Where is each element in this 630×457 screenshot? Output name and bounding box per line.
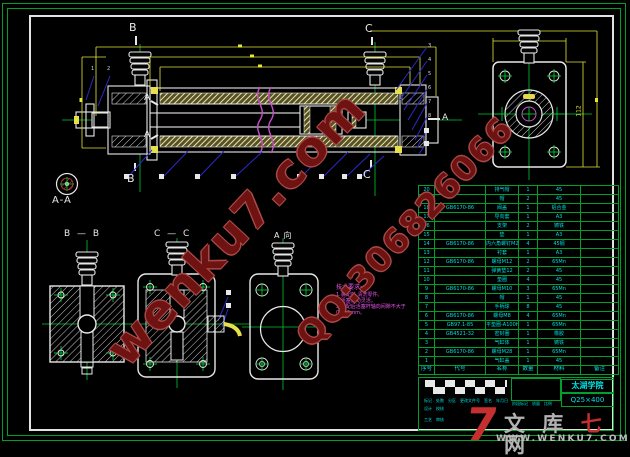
title-block-label: 处数 — [436, 399, 444, 403]
section-arrow-a-lower: A — [144, 131, 150, 140]
bom-cell: 数量 — [519, 366, 538, 375]
bom-cell: 2 — [519, 222, 538, 231]
section-marker-b-top: B — [129, 22, 137, 33]
bom-cell — [581, 213, 619, 222]
section-marker-b-bottom: B — [127, 173, 135, 184]
bom-cell: 内六角螺钉M2×70 — [486, 240, 519, 249]
bom-cell: 65Mn — [538, 348, 581, 357]
bom-cell — [435, 195, 486, 204]
view-bb — [50, 252, 124, 374]
drawing-title-box — [511, 378, 561, 401]
view-cc — [138, 242, 240, 377]
bom-cell — [435, 213, 486, 222]
bom-cell — [435, 231, 486, 240]
bom-cell — [581, 357, 619, 366]
bom-cell: GB6170-86 — [435, 285, 486, 294]
bom-cell: GB4521-32 — [435, 330, 486, 339]
bom-cell: 2 — [519, 195, 538, 204]
tech-notes-title: 技术要求: — [336, 285, 428, 291]
bom-cell: 5 — [419, 321, 435, 330]
bom-row: 20排气帽145 — [419, 186, 619, 195]
balloon-number: 5 — [428, 72, 431, 77]
bom-cell — [581, 195, 619, 204]
bom-cell: 平垫圈-A100HV — [486, 321, 519, 330]
bom-cell: GB6170-86 — [435, 258, 486, 267]
bom-cell — [581, 231, 619, 240]
bom-cell: 20 — [419, 186, 435, 195]
bom-cell: 备注 — [581, 366, 619, 375]
title-block-label: 校核 — [436, 407, 444, 411]
bom-cell: 19 — [419, 195, 435, 204]
bom-cell: 弹簧垫12 — [486, 267, 519, 276]
bom-cell — [581, 312, 619, 321]
bom-row: 1气缸盖145 — [419, 357, 619, 366]
bom-cell: 1 — [519, 231, 538, 240]
bom-cell — [581, 204, 619, 213]
title-block-label: 审核 — [436, 418, 444, 422]
view-flange — [493, 30, 566, 167]
balloon-number: 2 — [107, 67, 110, 72]
bom-cell: 衬套 — [486, 249, 519, 258]
school-name: 太湖学院 — [561, 379, 614, 393]
section-marker-c-bottom: C — [363, 169, 371, 180]
bom-cell: 1 — [519, 330, 538, 339]
bom-cell: 45 — [538, 195, 581, 204]
bom-cell: 3 — [419, 339, 435, 348]
bom-cell: A3 — [538, 231, 581, 240]
bom-cell: GB6170-86 — [435, 240, 486, 249]
bom-cell: 手柄球 — [486, 303, 519, 312]
bom-cell — [581, 186, 619, 195]
bom-cell: 45 — [538, 357, 581, 366]
tech-notes-lines: 1.装配前,清洗零件。2.活塞运动灵活。3.装配后活塞杆轴向间隙不大于0.025… — [336, 292, 428, 316]
bom-row: 3气缸体1铸铁 — [419, 339, 619, 348]
balloon-number: 1 — [91, 67, 94, 72]
bom-row: 7手柄球845 — [419, 303, 619, 312]
bom-cell — [581, 258, 619, 267]
bom-cell: 14 — [419, 240, 435, 249]
bom-cell — [581, 222, 619, 231]
bom-cell: 4 — [519, 312, 538, 321]
bom-cell — [581, 267, 619, 276]
bom-cell: 4 — [519, 240, 538, 249]
balloon-number: 3 — [428, 44, 431, 49]
bom-cell: GB6170-86 — [435, 312, 486, 321]
flange-height-dim: 112 — [577, 105, 583, 116]
section-marker-c-top: C — [365, 23, 373, 34]
bom-cell: 1 — [519, 348, 538, 357]
bom-cell — [435, 303, 486, 312]
bom-cell: 铸铁 — [538, 222, 581, 231]
logo-seven: 7 — [463, 402, 501, 447]
bom-cell: 气缸盖 — [486, 357, 519, 366]
bom-cell: 1 — [519, 321, 538, 330]
logo-url: WWW.WENKU7.COM — [496, 435, 630, 444]
bom-cell: 45 — [538, 294, 581, 303]
bom-cell: 6 — [419, 312, 435, 321]
bom-row: 18GB6170-86阀盖1铝合金 — [419, 204, 619, 213]
title-block-label: 分区 — [448, 399, 456, 403]
bom-cell: 1 — [519, 249, 538, 258]
bom-cell: A3 — [538, 213, 581, 222]
bom-row: 13衬套1A3 — [419, 249, 619, 258]
bom-cell: 铸铁 — [538, 339, 581, 348]
view-a-direction — [250, 243, 318, 379]
title-block-label: 标记 — [424, 399, 432, 403]
bom-cell — [435, 267, 486, 276]
view-cc-label: C — C — [154, 230, 191, 239]
title-block-label: 设计 — [424, 407, 432, 411]
bom-cell: 8 — [519, 303, 538, 312]
bom-cell: 橡胶 — [538, 330, 581, 339]
bom-cell: GB97.1-85 — [435, 321, 486, 330]
bom-row: 14GB6170-86内六角螺钉M2×70445钢 — [419, 240, 619, 249]
detail-aa-label: A-A — [52, 196, 72, 206]
bom-cell: 铝合金 — [538, 204, 581, 213]
bom-cell — [435, 294, 486, 303]
cad-screenshot: { "watermarks": { "site": "wenku7.com", … — [0, 0, 630, 448]
bom-cell: 16 — [419, 222, 435, 231]
bom-cell — [581, 294, 619, 303]
bom-cell — [581, 276, 619, 285]
bom-cell: 气缸体 — [486, 339, 519, 348]
bom-cell: 65Mn — [538, 285, 581, 294]
bom-cell: 3 — [519, 285, 538, 294]
bom-cell: 导向套 — [486, 213, 519, 222]
bom-cell — [435, 222, 486, 231]
bom-cell — [581, 285, 619, 294]
bom-row: 5GB97.1-85平垫圈-A100HV165Mn — [419, 321, 619, 330]
balloon-number: 4 — [428, 58, 431, 63]
bom-cell: 1 — [519, 357, 538, 366]
bom-cell: 4 — [519, 276, 538, 285]
bom-table: 20排气帽14519帽24518GB6170-86阀盖1铝合金17导向套1A31… — [418, 185, 619, 375]
bom-cell: 密封圈 — [486, 330, 519, 339]
bom-cell: 1 — [519, 294, 538, 303]
view-a-label: A向 — [274, 232, 295, 240]
bom-cell — [581, 303, 619, 312]
bom-cell: 4 — [419, 330, 435, 339]
bom-cell: 螺母M12 — [486, 258, 519, 267]
bom-cell: 1 — [519, 213, 538, 222]
bom-row: 6GB6170-86螺母M8465Mn — [419, 312, 619, 321]
bom-cell: 65Mn — [538, 321, 581, 330]
bom-cell: 9 — [419, 285, 435, 294]
bom-row: 15垫1A3 — [419, 231, 619, 240]
bom-cell: 垫圈 — [486, 276, 519, 285]
bom-cell: 45 — [538, 186, 581, 195]
bom-cell: 支架 — [486, 222, 519, 231]
bom-cell: 18 — [419, 204, 435, 213]
bom-cell: GB6170-86 — [435, 348, 486, 357]
bom-cell — [435, 276, 486, 285]
balloon-number: 7 — [428, 100, 431, 105]
bom-cell — [581, 249, 619, 258]
scale-bar — [425, 380, 507, 394]
bom-cell: 1 — [419, 357, 435, 366]
bom-cell: 7 — [419, 303, 435, 312]
bom-row: 序号代号名称数量材料备注 — [419, 366, 619, 375]
bom-row: 8帽145 — [419, 294, 619, 303]
bom-row: 4GB4521-32密封圈1橡胶 — [419, 330, 619, 339]
bom-row: 12GB6170-86螺母M12265Mn — [419, 258, 619, 267]
bom-cell: 65Mn — [538, 312, 581, 321]
balloon-squares — [124, 128, 429, 308]
bom-cell: 2 — [519, 267, 538, 276]
wenku7-logo: 7 文 库 七 网 WWW.WENKU7.COM — [460, 400, 628, 448]
bom-cell: 螺母M10 — [486, 285, 519, 294]
bom-cell — [581, 240, 619, 249]
detail-aa — [57, 174, 78, 195]
bom-cell: 阀盖 — [486, 204, 519, 213]
bom-cell: 1 — [519, 204, 538, 213]
bom-row: 17导向套1A3 — [419, 213, 619, 222]
bom-cell: 代号 — [435, 366, 486, 375]
bom-cell: 名称 — [486, 366, 519, 375]
bom-cell: 10 — [419, 276, 435, 285]
tech-notes: 技术要求: 1.装配前,清洗零件。2.活塞运动灵活。3.装配后活塞杆轴向间隙不大… — [336, 285, 428, 316]
bom-cell: 螺母M8 — [486, 312, 519, 321]
bom-cell: 12 — [419, 258, 435, 267]
bom-cell — [435, 186, 486, 195]
bom-cell: 螺母M28 — [486, 348, 519, 357]
bom-cell: 45 — [538, 267, 581, 276]
bom-row: 2GB6170-86螺母M28165Mn — [419, 348, 619, 357]
balloon-number: 8 — [428, 114, 431, 119]
bom-cell: 序号 — [419, 366, 435, 375]
bom-cell: 8 — [419, 294, 435, 303]
balloon-number: 6 — [428, 86, 431, 91]
bom-cell: 2 — [519, 258, 538, 267]
bom-cell — [581, 330, 619, 339]
bom-cell: 17 — [419, 213, 435, 222]
bom-cell: 15 — [419, 231, 435, 240]
bom-cell: 材料 — [538, 366, 581, 375]
view-arrow-a-right: A — [442, 114, 448, 123]
title-block-label: 工艺 — [424, 418, 432, 422]
bom-cell: 排气帽 — [486, 186, 519, 195]
bom-cell: 13 — [419, 249, 435, 258]
bom-row: 16支架2铸铁 — [419, 222, 619, 231]
section-arrow-a-upper: A — [144, 94, 150, 103]
cylinder-assembly — [74, 36, 440, 171]
bom-cell: 2 — [419, 348, 435, 357]
bom-cell — [581, 348, 619, 357]
bom-cell: 帽 — [486, 195, 519, 204]
bom-cell — [435, 339, 486, 348]
bom-cell — [581, 339, 619, 348]
bom-cell: 65Mn — [538, 258, 581, 267]
bom-row: 11弹簧垫12245 — [419, 267, 619, 276]
bom-cell: 帽 — [486, 294, 519, 303]
bom-cell — [435, 249, 486, 258]
bom-cell: GB6170-86 — [435, 204, 486, 213]
bom-cell: 45 — [538, 303, 581, 312]
bom-cell — [581, 321, 619, 330]
bom-cell: A3 — [538, 249, 581, 258]
bom-cell: 1 — [519, 186, 538, 195]
bom-row: 19帽245 — [419, 195, 619, 204]
bom-cell: 垫 — [486, 231, 519, 240]
bom-cell — [435, 357, 486, 366]
view-bb-label: B — B — [64, 230, 101, 239]
bom-cell: 11 — [419, 267, 435, 276]
bom-cell: 45钢 — [538, 240, 581, 249]
bom-cell: 45 — [538, 276, 581, 285]
bom-cell: 1 — [519, 339, 538, 348]
bom-row: 10垫圈445 — [419, 276, 619, 285]
sign-row-1: 设计校核 — [424, 407, 444, 411]
sign-row-2: 工艺审核 — [424, 418, 444, 422]
bom-row: 9GB6170-86螺母M10365Mn — [419, 285, 619, 294]
tech-note-line: 0.025mm。 — [336, 310, 428, 316]
